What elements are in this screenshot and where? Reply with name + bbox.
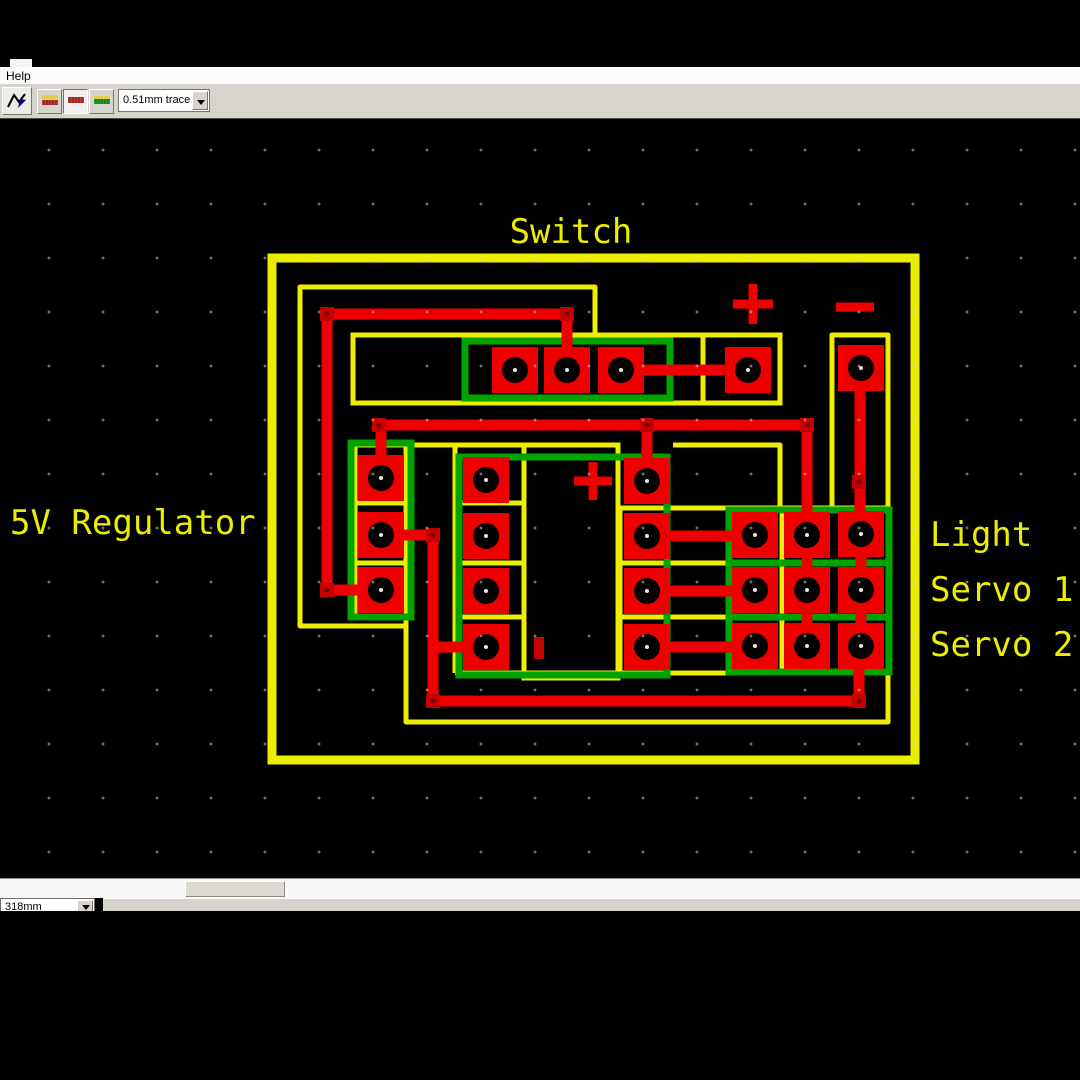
pad-center-dot: [379, 533, 383, 537]
pad-center-dot: [645, 479, 649, 483]
pad-center-dot: [753, 644, 757, 648]
via-hole: [431, 533, 436, 538]
pcb-canvas[interactable]: Switch5V RegulatorLightServo 1Servo 2: [0, 119, 1080, 878]
layer-top-and-bottom-button[interactable]: [37, 89, 62, 114]
pad-center-dot: [484, 645, 488, 649]
chevron-down-icon: [82, 905, 90, 910]
via-hole: [645, 423, 650, 428]
via-hole: [565, 312, 570, 317]
pad-center-dot: [859, 644, 863, 648]
pad-center-dot: [645, 589, 649, 593]
trace-width-dropdown-button[interactable]: [192, 91, 208, 110]
layer-bottom-icon: [93, 93, 111, 110]
pad-center-dot: [513, 368, 517, 372]
pcb-label[interactable]: 5V Regulator: [10, 503, 256, 543]
polarity-plus-symbol[interactable]: [589, 462, 598, 500]
pcb-label[interactable]: Servo 1: [930, 570, 1073, 610]
pad-center-dot: [859, 532, 863, 536]
pad-center-dot: [746, 368, 750, 372]
status-strip: [103, 898, 1080, 912]
pin1-marker[interactable]: [534, 637, 544, 659]
horizontal-scrollbar[interactable]: [0, 878, 1080, 898]
layer-top-icon: [67, 93, 85, 110]
via-hole: [377, 423, 382, 428]
via-hole: [857, 480, 862, 485]
pcb-label[interactable]: Servo 2: [930, 625, 1073, 665]
pad-center-dot: [805, 644, 809, 648]
pad-center-dot: [379, 476, 383, 480]
via-hole: [325, 588, 330, 593]
layer-bottom-button[interactable]: [89, 89, 114, 114]
app-window: Help: [0, 0, 1080, 1080]
polarity-plus-symbol[interactable]: [749, 284, 758, 324]
menu-item-help[interactable]: Help: [0, 68, 37, 84]
top-black-band: [0, 0, 1080, 67]
bottom-black-band: [0, 911, 1080, 1080]
via-hole: [325, 312, 330, 317]
layer-top-and-bottom-icon: [41, 93, 59, 110]
menu-bar: Help: [0, 67, 1080, 84]
pad-center-dot: [753, 588, 757, 592]
via-hole: [805, 423, 810, 428]
pad-center-dot: [859, 588, 863, 592]
pad-center-dot: [619, 368, 623, 372]
via-hole: [431, 699, 436, 704]
pad-center-dot: [484, 534, 488, 538]
pad-center-dot: [565, 368, 569, 372]
pad-center-dot: [645, 645, 649, 649]
horizontal-scrollbar-thumb[interactable]: [185, 881, 285, 897]
pcb-label[interactable]: Light: [930, 515, 1032, 555]
pad-center-dot: [379, 588, 383, 592]
pcb-label[interactable]: Switch: [510, 212, 633, 252]
pad-center-dot: [484, 589, 488, 593]
via-hole: [857, 699, 862, 704]
toolbar: 0.51mm trace: [0, 84, 1080, 119]
layer-top-button[interactable]: [63, 89, 88, 114]
route-trace-icon: [5, 89, 29, 114]
pad-center-dot: [645, 534, 649, 538]
trace-width-value: 0.51mm trace: [123, 94, 190, 106]
trace-width-select[interactable]: 0.51mm trace: [118, 89, 210, 112]
pad-center-dot: [805, 533, 809, 537]
pcb-drawing[interactable]: Switch5V RegulatorLightServo 1Servo 2: [0, 119, 1080, 878]
pad-center-dot: [484, 478, 488, 482]
chevron-down-icon: [197, 100, 205, 105]
silkscreen-line[interactable]: [673, 445, 780, 508]
pad-center-dot: [753, 533, 757, 537]
window-artifact: [10, 59, 32, 67]
route-trace-tool-button[interactable]: [2, 87, 32, 115]
polarity-minus-symbol[interactable]: [836, 303, 874, 312]
pad-center-dot: [805, 588, 809, 592]
pad-center-dot: [859, 366, 863, 370]
